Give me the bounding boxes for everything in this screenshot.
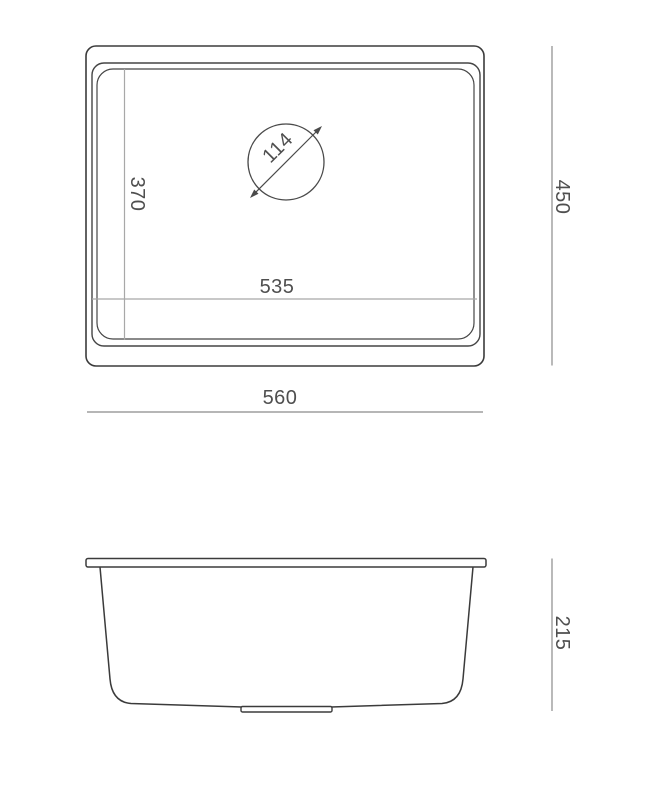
side-view-bowl-outline [100,567,473,707]
dim-label-overall-depth: 450 [552,180,572,215]
technical-drawing-canvas: 114 370 535 450 560 215 [0,0,646,800]
dim-label-bowl-width: 535 [260,277,295,297]
dim-label-overall-height: 215 [552,616,572,651]
side-view-drain-outlet [241,707,332,713]
side-view [86,559,552,713]
top-view [86,46,552,412]
sink-drawing [0,0,646,800]
dim-label-bowl-depth: 370 [127,177,147,212]
dim-label-overall-width: 560 [263,388,298,408]
top-view-rim-outer-line [92,63,480,346]
side-view-rim [86,559,486,568]
